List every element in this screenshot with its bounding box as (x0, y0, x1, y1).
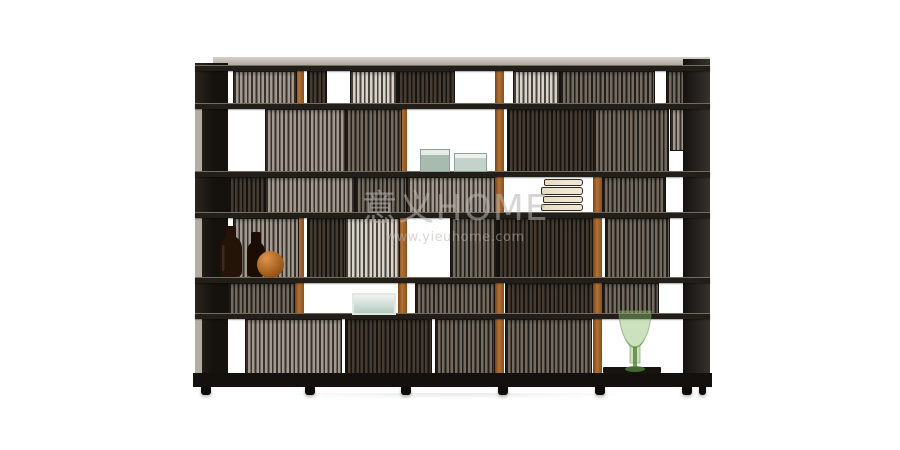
slat-panel (397, 70, 455, 106)
shelf (195, 212, 710, 218)
slat-panel (265, 108, 347, 174)
slat-panel (505, 282, 593, 316)
slat-panel (435, 318, 495, 376)
slat-panel (345, 318, 432, 376)
slat-panel (505, 318, 592, 376)
side-highlight (195, 108, 202, 171)
slat-panel (507, 108, 595, 174)
vase-stem (633, 347, 637, 367)
shelf (195, 65, 710, 71)
slat-panel (307, 217, 347, 280)
slat-panel (265, 176, 355, 215)
foot (699, 387, 706, 395)
slat-panel (307, 70, 327, 106)
book (541, 187, 583, 194)
slat-panel (497, 217, 593, 280)
slat-panel (593, 108, 669, 174)
slat-panel (245, 318, 342, 376)
foot (201, 387, 211, 395)
wood-sphere (257, 251, 284, 278)
foot (595, 387, 605, 395)
slat-panel (415, 282, 495, 316)
side-highlight (195, 318, 202, 375)
book-stack (541, 178, 583, 211)
storage-box (420, 149, 450, 172)
slat-panel (233, 70, 297, 106)
book (543, 196, 583, 203)
vase-foot (625, 366, 645, 372)
slat-panel (407, 176, 495, 215)
foot (682, 387, 692, 395)
slat-panel (355, 176, 407, 215)
foot (401, 387, 411, 395)
side-highlight (195, 217, 202, 277)
shelf (195, 171, 710, 177)
foot (498, 387, 508, 395)
base-plinth (193, 373, 712, 387)
storage-box (454, 153, 487, 172)
slat-panel (602, 176, 666, 215)
book (544, 179, 583, 186)
slat-panel (345, 217, 400, 280)
slat-panel (228, 176, 267, 215)
slat-panel (605, 217, 670, 280)
shelf (195, 103, 710, 109)
product-photo: 意义HOME www.yieuhome.com (0, 0, 900, 450)
slat-panel (228, 282, 295, 316)
left-side-panel (195, 63, 228, 375)
slat-panel (450, 217, 497, 280)
book (541, 204, 583, 211)
slat-panel (513, 70, 560, 106)
floor-shadow (195, 393, 710, 402)
glass-box (352, 293, 396, 315)
slat-panel (560, 70, 655, 106)
slat-panel (350, 70, 397, 106)
bottle-highlight (222, 245, 225, 271)
green-glass-vase (613, 309, 657, 374)
shelving-unit (195, 57, 710, 402)
foot (305, 387, 315, 395)
slat-panel (345, 108, 402, 174)
